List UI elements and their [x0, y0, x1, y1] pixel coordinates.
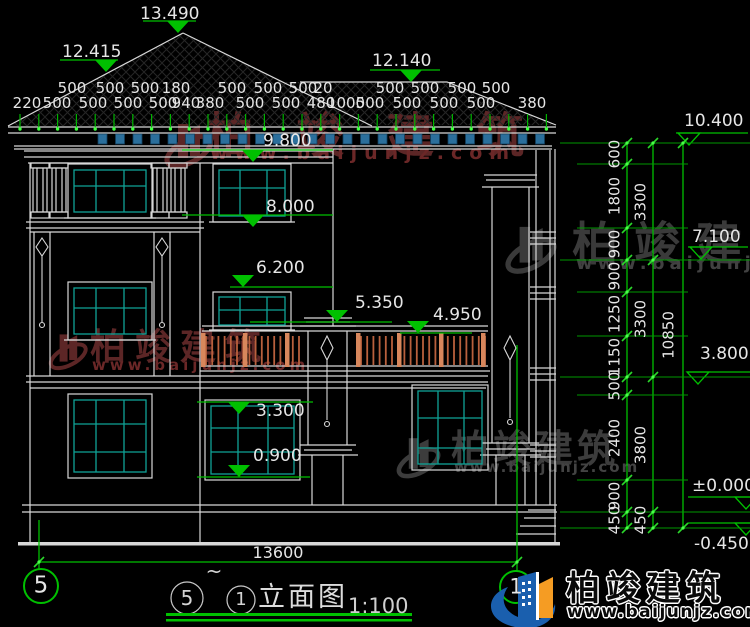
- dimension-label: 500: [43, 96, 72, 111]
- dimension-label: 380: [518, 96, 547, 111]
- elevation-label: 10.400: [684, 113, 743, 130]
- elevation-label: 12.415: [62, 44, 121, 61]
- grid-bubble-label: 5: [34, 575, 49, 598]
- drawing-title: 立面图: [258, 584, 348, 611]
- drawing-scale: 1:100: [348, 596, 409, 617]
- dimension-label: 380: [196, 96, 225, 111]
- dimension-label: 500: [467, 96, 496, 111]
- title-bubble-number: 1: [235, 591, 246, 609]
- dimension-label: 450: [634, 506, 649, 535]
- cad-elevation-screenshot: 柏竣建筑 www.baijunjz.com 柏竣建筑 www.baijunjz.…: [0, 0, 750, 627]
- dimension-label: 3300: [634, 182, 649, 220]
- dimension-label: 2400: [608, 418, 623, 456]
- dimension-label: 10850: [662, 311, 677, 359]
- dimension-label: 500: [79, 96, 108, 111]
- elevation-label: 7.100: [692, 229, 741, 246]
- dimension-label: 1150: [608, 337, 623, 375]
- footer-logo-website: www.baijunjz.com: [567, 604, 750, 621]
- elevation-label: -0.450: [694, 536, 749, 553]
- elevation-label: ±0.000: [692, 478, 750, 495]
- elevation-label: 0.900: [253, 448, 302, 465]
- elevation-label: 8.000: [266, 199, 315, 216]
- dimension-label: 1250: [608, 295, 623, 333]
- dimension-label: 500: [430, 96, 459, 111]
- dimension-label: 500: [236, 96, 265, 111]
- dimension-label: 220: [13, 96, 42, 111]
- elevation-label: 6.200: [256, 260, 305, 277]
- elevation-label: 9.800: [263, 133, 312, 150]
- dimension-label: 900: [608, 230, 623, 259]
- dimension-label: 500: [272, 96, 301, 111]
- elevation-label: 3.300: [256, 403, 305, 420]
- elevation-label: 12.140: [372, 53, 431, 70]
- dimension-label: 500: [114, 96, 143, 111]
- dimension-label: 500: [393, 96, 422, 111]
- elevation-label: 5.350: [355, 295, 404, 312]
- dimension-label: 500: [356, 96, 385, 111]
- elevation-label: 13.490: [140, 6, 199, 23]
- dimension-label: 900: [608, 262, 623, 291]
- dimension-label: 13600: [253, 545, 304, 561]
- dimension-label: 450: [608, 506, 623, 535]
- dimension-label: 1800: [608, 177, 623, 215]
- title-tilde: ~: [206, 561, 223, 581]
- title-bubble-number: 5: [181, 588, 194, 608]
- footer-logo-brand: 柏竣建筑: [566, 572, 726, 606]
- dimension-label: 3300: [634, 299, 649, 337]
- grid-bubble-label: 1: [509, 577, 522, 598]
- elevation-label: 4.950: [433, 307, 482, 324]
- dimension-label: 3800: [634, 425, 649, 463]
- elevation-label: 3.800: [700, 346, 749, 363]
- dimension-label: 600: [608, 139, 623, 168]
- dimension-label: 500: [608, 372, 623, 401]
